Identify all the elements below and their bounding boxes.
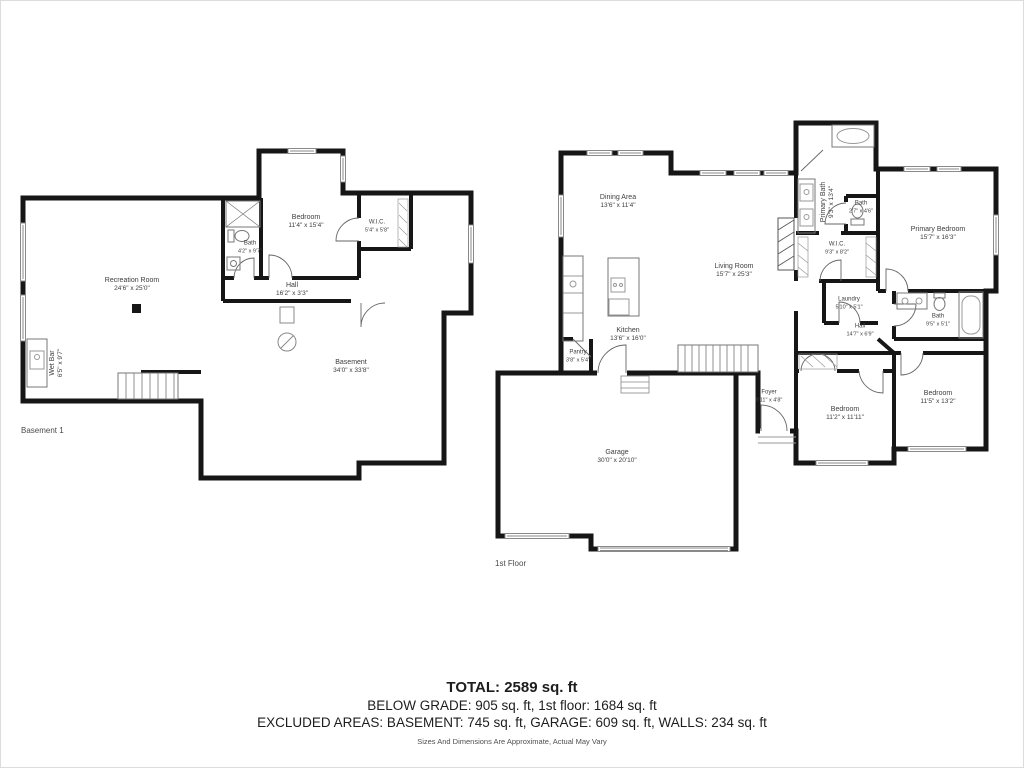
wall-outline: [23, 151, 471, 478]
wall-outline-garage: [498, 373, 736, 549]
basement-walls: [23, 151, 471, 478]
disclaimer-text: Sizes And Dimensions Are Approximate, Ac…: [1, 737, 1023, 746]
porch-lines: [758, 437, 796, 443]
grade-area-text: BELOW GRADE: 905 sq. ft, 1st floor: 1684…: [1, 698, 1023, 713]
stairs-icon: [118, 373, 178, 399]
first-floor-walls: [498, 123, 996, 549]
step-landing: [621, 376, 649, 393]
basement-plan-title: Basement 1: [21, 426, 64, 435]
excluded-area-text: EXCLUDED AREAS: BASEMENT: 745 sq. ft, GA…: [1, 715, 1023, 730]
first-floor-floorplan: [498, 123, 999, 552]
total-area-text: TOTAL: 2589 sq. ft: [1, 679, 1023, 696]
basement-stairs: [118, 373, 178, 399]
stairs-icon: [678, 345, 758, 372]
basement-floorplan: [21, 149, 474, 479]
floorplan-page: Recreation Room 24'6" x 25'0" Bedroom 11…: [0, 0, 1024, 768]
support-post: [132, 304, 141, 313]
door-gap: [760, 429, 790, 434]
first-floor-plan-title: 1st Floor: [495, 559, 526, 568]
area-summary: TOTAL: 2589 sq. ft BELOW GRADE: 905 sq. …: [1, 679, 1023, 754]
door-gap: [597, 371, 627, 376]
floorplan-drawing: [1, 1, 1024, 768]
